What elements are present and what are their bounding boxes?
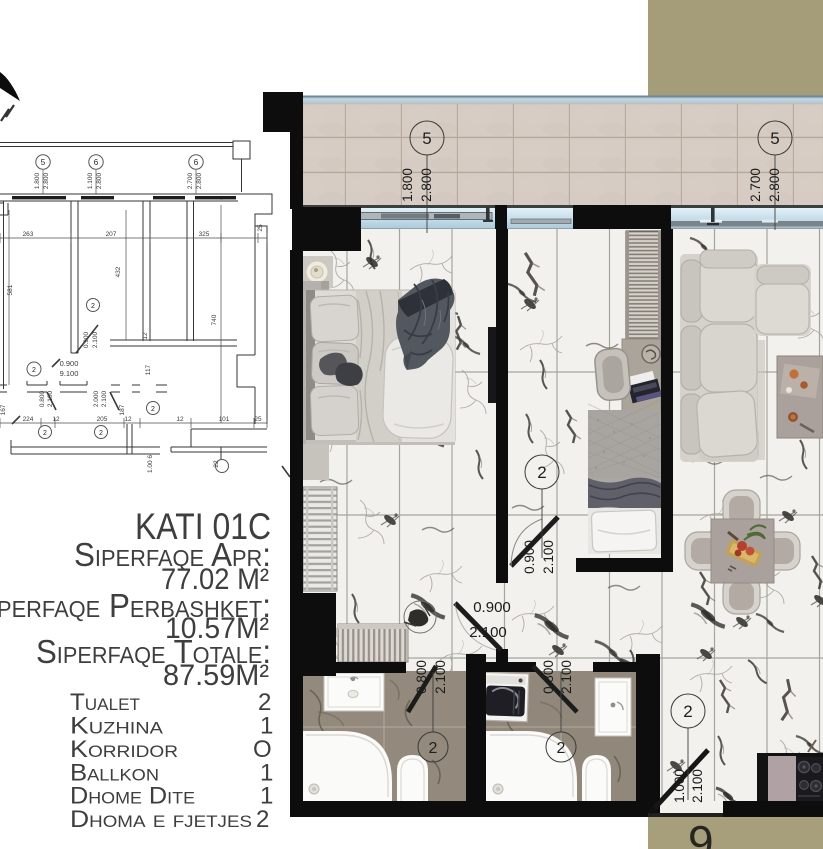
svg-text:101: 101 [219, 416, 230, 423]
svg-text:1.800: 1.800 [34, 172, 41, 189]
svg-text:207: 207 [106, 231, 117, 238]
svg-text:2: 2 [557, 740, 566, 757]
svg-text:2.100: 2.100 [433, 660, 448, 694]
svg-text:12: 12 [52, 416, 60, 423]
svg-text:581: 581 [7, 284, 14, 295]
svg-text:2: 2 [256, 806, 269, 833]
svg-text:2.100: 2.100 [559, 660, 574, 694]
svg-text:0.900: 0.900 [83, 331, 90, 348]
svg-text:5: 5 [770, 129, 779, 148]
svg-text:2.800: 2.800 [196, 172, 203, 189]
svg-text:25: 25 [254, 416, 262, 423]
svg-text:9.100: 9.100 [60, 369, 79, 378]
svg-text:2.100: 2.100 [541, 540, 556, 574]
svg-text:2.100: 2.100 [690, 769, 705, 803]
svg-text:6: 6 [194, 158, 199, 167]
svg-text:0.900: 0.900 [473, 599, 511, 616]
svg-text:2.800: 2.800 [767, 168, 782, 202]
svg-text:12: 12 [124, 416, 132, 423]
svg-text:1.100: 1.100 [87, 172, 94, 189]
svg-text:12: 12 [142, 332, 149, 340]
svg-text:2: 2 [151, 406, 155, 413]
svg-text:2.800: 2.800 [43, 172, 50, 189]
svg-text:205: 205 [97, 416, 108, 423]
svg-text:2: 2 [43, 430, 47, 437]
svg-text:740: 740 [211, 314, 218, 325]
svg-text:2: 2 [91, 303, 95, 310]
svg-text:117: 117 [145, 364, 152, 375]
svg-text:87.59M²: 87.59M² [163, 659, 269, 692]
svg-text:432: 432 [115, 266, 122, 277]
svg-text:0.800: 0.800 [541, 660, 556, 694]
svg-text:1.000: 1.000 [672, 769, 687, 803]
svg-text:0.800: 0.800 [414, 660, 429, 694]
svg-text:0.900: 0.900 [60, 359, 79, 368]
svg-text:2: 2 [32, 367, 36, 374]
svg-text:2.700: 2.700 [187, 172, 194, 189]
svg-text:2: 2 [99, 430, 103, 437]
svg-text:2.100: 2.100 [47, 390, 54, 407]
svg-text:2.100: 2.100 [469, 624, 507, 641]
svg-text:25: 25 [257, 224, 264, 232]
svg-text:224: 224 [23, 416, 34, 423]
svg-text:1.00 6: 1.00 6 [147, 455, 154, 473]
svg-text:6: 6 [94, 158, 99, 167]
svg-text:2.800: 2.800 [96, 172, 103, 189]
svg-text:12: 12 [176, 416, 184, 423]
svg-text:2.700: 2.700 [748, 168, 763, 202]
svg-text:1.800: 1.800 [400, 168, 415, 202]
svg-text:2.100: 2.100 [92, 331, 99, 348]
svg-text:167: 167 [0, 404, 7, 415]
svg-text:2: 2 [683, 702, 692, 721]
svg-text:263: 263 [23, 231, 34, 238]
svg-text:2: 2 [429, 740, 438, 757]
svg-text:9: 9 [688, 816, 714, 849]
svg-text:2: 2 [537, 463, 546, 482]
svg-text:Dhoma e fjetjes: Dhoma e fjetjes [70, 806, 252, 833]
svg-text:2.000: 2.000 [93, 390, 100, 407]
svg-text:2.100: 2.100 [101, 390, 108, 407]
svg-text:5: 5 [41, 158, 46, 167]
svg-text:2.800: 2.800 [419, 168, 434, 202]
svg-text:0.800: 0.800 [39, 390, 46, 407]
svg-text:0.900: 0.900 [522, 540, 537, 574]
svg-text:22: 22 [213, 460, 220, 468]
svg-text:5: 5 [422, 129, 431, 148]
svg-text:187: 187 [119, 404, 126, 415]
svg-text:325: 325 [199, 231, 210, 238]
